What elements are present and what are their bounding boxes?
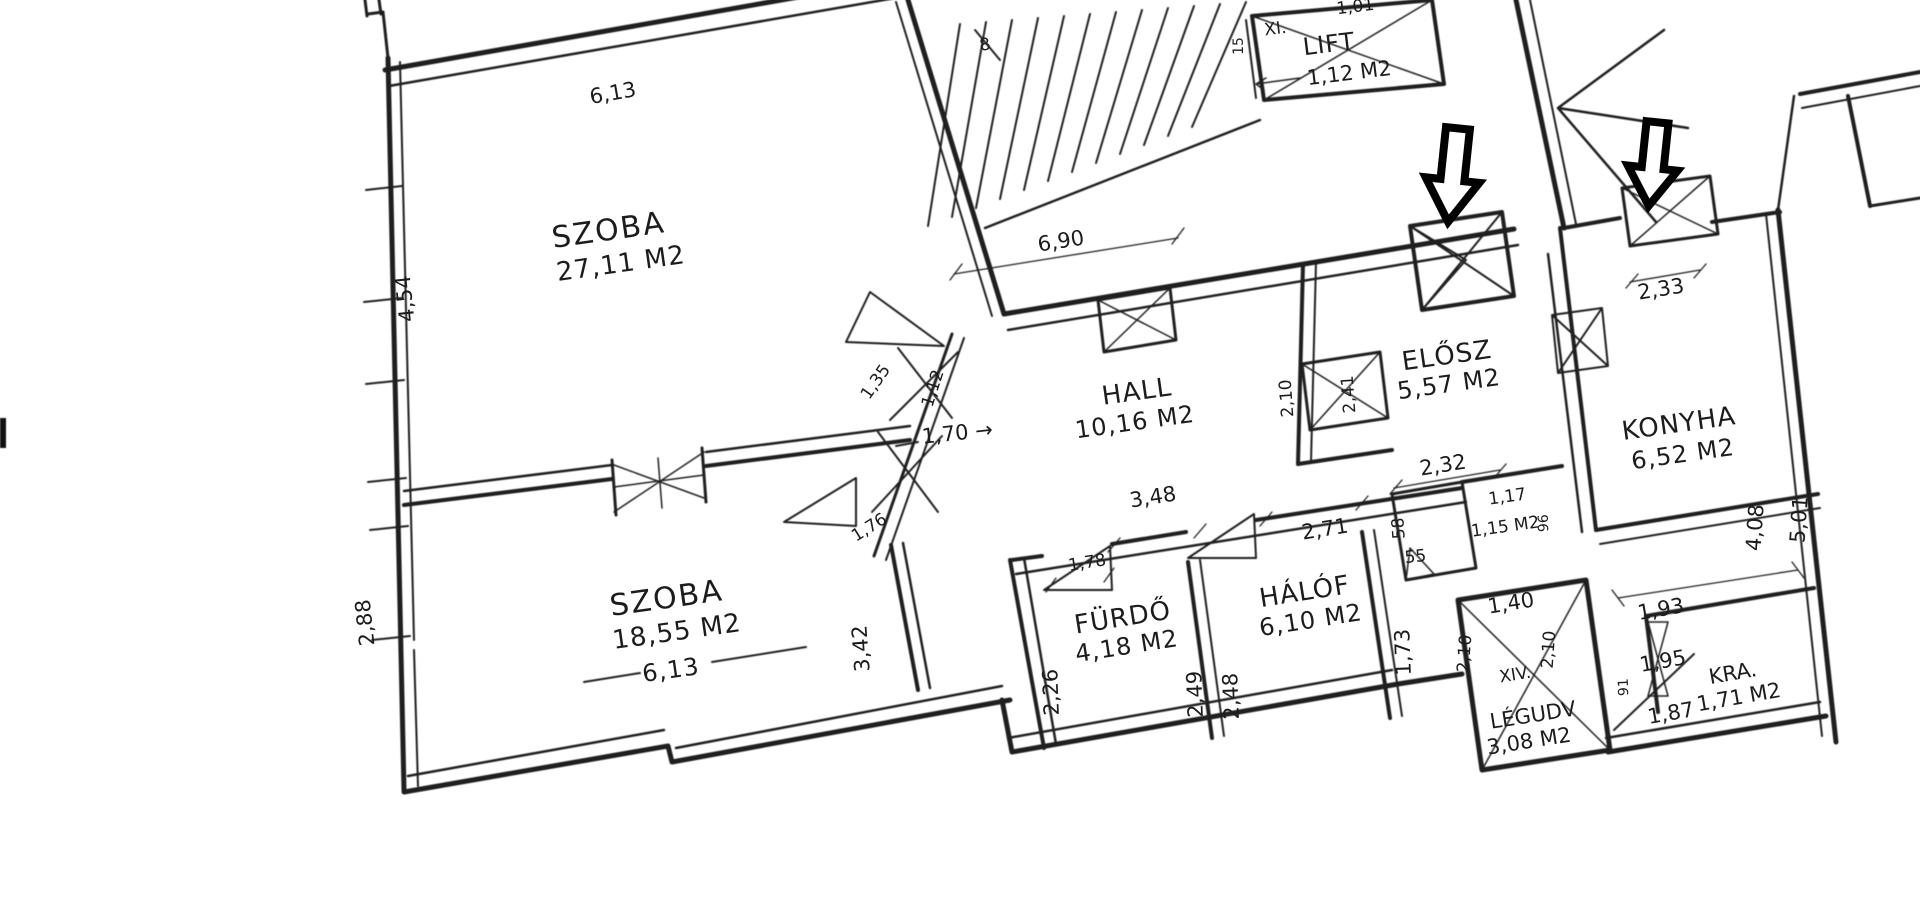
room-area-wc: 1,15 M2 — [1470, 512, 1541, 541]
dim-pass-side: 91 — [1616, 678, 1633, 696]
dim-elosz-door: 2,41 — [1338, 375, 1361, 414]
dim-legudv-right: 2,10 — [1538, 630, 1561, 669]
dim-szoba2-width: 6,13 — [640, 652, 701, 688]
dim-diag-lower: 1,12 — [918, 367, 949, 409]
dim-halof-right: 1,73 — [1390, 628, 1416, 676]
dim-wc-side-lower: 55 — [1404, 546, 1428, 568]
dim-halof-left: 2,48 — [1218, 672, 1244, 720]
dim-halof-top: 2,71 — [1300, 514, 1350, 545]
tag-floor-upper: XI. — [1263, 18, 1287, 41]
scan-artifact — [0, 418, 6, 448]
adjacent-structure — [1800, 72, 1920, 206]
dim-pass-upper: 1,95 — [1638, 645, 1688, 677]
dim-top-partial: 1,01 — [1335, 0, 1375, 19]
dim-konyha-window: 2,33 — [1636, 274, 1686, 305]
dim-szoba1-width: 6,13 — [588, 77, 638, 109]
dim-konyha-inner: 4,08 — [1741, 503, 1768, 551]
dim-furdo-left: 2,26 — [1038, 668, 1064, 716]
dim-konyha-outer: 5,01 — [1785, 495, 1812, 543]
dim-hall-entry: 1,70 → — [921, 417, 994, 448]
tag-stair-mark: 8 — [978, 34, 992, 56]
exterior-wall-right — [1766, 96, 1836, 742]
dim-wc-top: 2,32 — [1418, 450, 1468, 481]
dim-furdo-door: 1,78 — [1067, 550, 1108, 576]
dim-diag-upper: 1,35 — [857, 361, 895, 403]
tag-floor-lower: XIV. — [1498, 663, 1532, 688]
konyha-window-icon — [1564, 176, 1780, 288]
dim-wc-side-upper: 58 — [1388, 517, 1409, 540]
window-icon — [612, 448, 706, 515]
floor-plan-page: SZOBA 27,11 M2 6,13 4,54 SZOBA 18,55 M2 … — [0, 0, 1920, 924]
exterior-wall-top — [385, 0, 940, 86]
dim-hall-south: 3,48 — [1128, 482, 1178, 513]
floor-plan-drawing: SZOBA 27,11 M2 6,13 4,54 SZOBA 18,55 M2 … — [0, 0, 1920, 924]
highlight-arrow-entrance — [1421, 126, 1485, 225]
dim-wc-width: 1,17 — [1487, 485, 1527, 510]
dim-szoba1-height: 4,54 — [391, 274, 420, 323]
dim-legudv-left: 2,10 — [1454, 634, 1477, 673]
dim-wc-depth: 96 — [1536, 514, 1553, 532]
szoba-divider-wall — [404, 426, 910, 515]
dim-furdo-right: 2,49 — [1182, 670, 1208, 718]
dim-niche-width: 1,76 — [848, 509, 891, 546]
dim-kamra-top: 1,93 — [1636, 593, 1686, 625]
tag-lift-side: 15 — [1231, 37, 1247, 55]
dim-szoba2-height: 2,88 — [351, 598, 380, 647]
room-area-lift: 1,12 M2 — [1306, 56, 1393, 90]
dim-hall-door: 2,10 — [1276, 379, 1299, 418]
exterior-wall-bottom — [404, 670, 1826, 792]
dim-niche-height: 3,42 — [847, 624, 874, 672]
room-label-lift: LIFT — [1301, 27, 1357, 61]
exterior-wall-left — [364, 0, 418, 790]
konyha-walls — [1548, 228, 1820, 544]
dim-stair-hall: 6,90 — [1036, 226, 1086, 257]
door-icon — [1098, 288, 1176, 352]
elosz-wall-and-door — [1298, 262, 1388, 464]
